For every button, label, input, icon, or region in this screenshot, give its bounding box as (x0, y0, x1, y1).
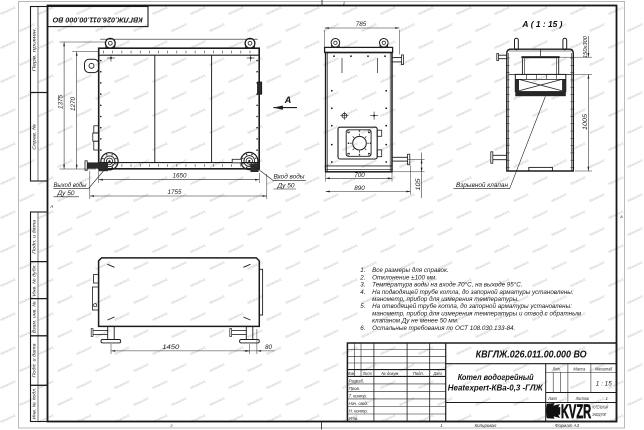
svg-text:Выход воды: Выход воды (54, 182, 87, 189)
svg-text:5.: 5. (360, 303, 365, 310)
svg-text:1005: 1005 (582, 113, 589, 130)
svg-text:Справ. №: Справ. № (31, 123, 36, 149)
svg-text:А: А (619, 214, 623, 219)
svg-text:Пров.: Пров. (349, 386, 360, 391)
svg-text:Копировал: Копировал (475, 423, 497, 428)
svg-text:Взам. инв. №: Взам. инв. № (31, 301, 36, 333)
svg-text:700: 700 (354, 172, 365, 179)
svg-text:Н. контр.: Н. контр. (349, 408, 368, 413)
svg-text:А: А (284, 95, 292, 105)
svg-text:Лист: Лист (547, 396, 557, 401)
svg-text:На отводящей трубе котла, до з: На отводящей трубе котла, до запорной ар… (372, 303, 572, 310)
svg-text:Разраб.: Разраб. (349, 378, 365, 383)
svg-text:манометр, прибор для измерения: манометр, прибор для измерения температу… (372, 296, 519, 303)
svg-text:785: 785 (356, 21, 367, 28)
svg-text:Масса: Масса (573, 366, 586, 371)
svg-text:Лист: Лист (362, 371, 372, 376)
svg-text:150х300: 150х300 (583, 35, 589, 58)
svg-text:Перв. примен.: Перв. примен. (31, 28, 36, 72)
svg-text:Вход воды: Вход воды (274, 174, 305, 181)
svg-text:КВГЛЖ.026.011.00.000 ВО: КВГЛЖ.026.011.00.000 ВО (476, 350, 587, 361)
svg-text:Инв. № подл.: Инв. № подл. (31, 387, 36, 419)
svg-text:1650: 1650 (172, 173, 187, 180)
svg-text:2: 2 (342, 2, 345, 6)
svg-text:1755: 1755 (167, 189, 182, 196)
svg-text:80: 80 (265, 344, 273, 351)
svg-text:1: 1 (440, 423, 442, 428)
svg-text:Утв.: Утв. (349, 416, 359, 421)
svg-text:Все размеры для справок.: Все размеры для справок. (372, 267, 449, 274)
svg-text:KVZR: KVZR (561, 401, 591, 423)
svg-text:ЗАВОД РЭП: ЗАВОД РЭП (592, 412, 606, 417)
svg-text:Т. контр.: Т. контр. (349, 393, 368, 398)
svg-text:КОТЕЛЬНЫЙ: КОТЕЛЬНЫЙ (592, 405, 609, 410)
svg-text:2: 2 (170, 424, 173, 428)
svg-text:3.: 3. (360, 282, 365, 289)
svg-text:Взрывной клапан: Взрывной клапан (456, 182, 509, 189)
svg-text:Подп. и дата: Подп. и дата (31, 343, 36, 378)
svg-text:Подп.: Подп. (413, 371, 424, 376)
svg-text:А ( 1 : 15 ): А ( 1 : 15 ) (521, 20, 562, 29)
svg-text:Лит.: Лит. (552, 366, 561, 371)
svg-text:2.: 2. (359, 274, 365, 281)
svg-text:105: 105 (415, 178, 422, 191)
svg-text:А: А (49, 204, 53, 209)
svg-text:1270: 1270 (70, 97, 77, 112)
svg-text:Остальные требования по ОСТ 10: Остальные требования по ОСТ 108.030.133-… (372, 325, 515, 332)
svg-text:Отклонение ±100 мм.: Отклонение ±100 мм. (372, 274, 437, 281)
svg-text:890: 890 (354, 185, 365, 192)
svg-text:Листов: Листов (575, 396, 589, 401)
svg-text:Дата: Дата (433, 371, 443, 376)
svg-text:1450: 1450 (162, 344, 180, 351)
svg-text:№ докум.: № докум. (382, 371, 400, 376)
svg-text:манометр, прибор для измерения: манометр, прибор для измерения температу… (372, 310, 582, 317)
svg-text:Температура воды на входе 70°С: Температура воды на входе 70°С, на выход… (372, 282, 522, 289)
svg-text:Heatexpert-КВа-0,3 -ГЛЖ: Heatexpert-КВа-0,3 -ГЛЖ (448, 383, 543, 392)
svg-text:Масштаб: Масштаб (595, 366, 612, 371)
svg-text:клапаном Ду не менее 50 мм.: клапаном Ду не менее 50 мм. (372, 318, 459, 325)
svg-text:Формат А3: Формат А3 (555, 423, 580, 428)
svg-text:1375: 1375 (58, 95, 65, 110)
svg-text:Ду 50: Ду 50 (56, 190, 75, 197)
svg-text:Инв. № дубл.: Инв. № дубл. (31, 264, 36, 296)
svg-text:6.: 6. (360, 325, 365, 332)
svg-text:1.: 1. (360, 267, 365, 274)
svg-text:Ду 50: Ду 50 (276, 182, 295, 189)
svg-text:Нач. отд.: Нач. отд. (349, 401, 368, 406)
svg-text:КВГЛЖ.026.011.00.000 ВО: КВГЛЖ.026.011.00.000 ВО (52, 15, 142, 24)
svg-text:Подп. и дата: Подп. и дата (31, 219, 36, 254)
svg-text:На подводящей трубе котла, до: На подводящей трубе котла, до запорной а… (372, 289, 574, 296)
svg-text:4.: 4. (360, 289, 365, 296)
svg-text:1 : 15: 1 : 15 (596, 380, 612, 387)
svg-text:Изм: Изм (348, 371, 355, 376)
svg-text:Котел водогрейный: Котел водогрейный (458, 373, 534, 382)
